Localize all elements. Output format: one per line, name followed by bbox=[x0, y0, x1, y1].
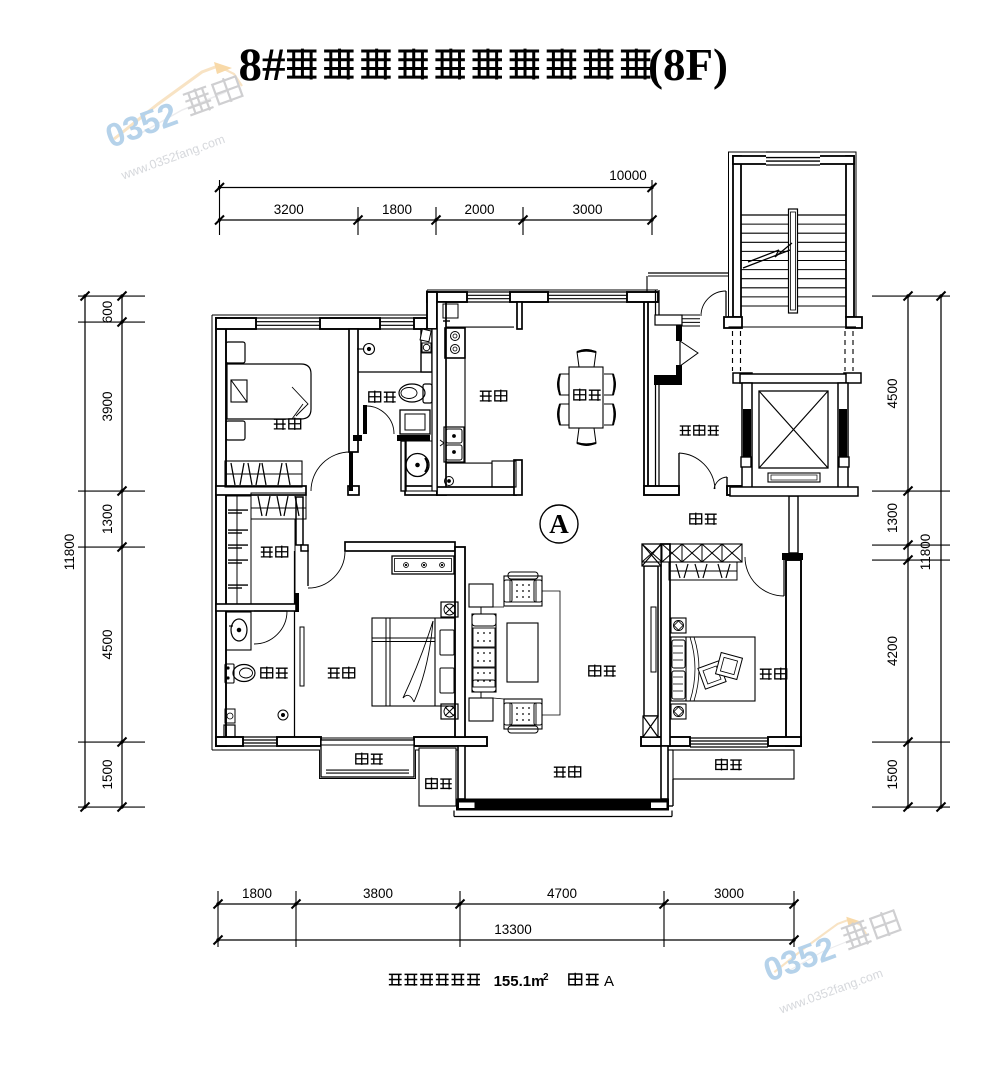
svg-text:3000: 3000 bbox=[572, 202, 602, 217]
svg-text:A: A bbox=[549, 509, 569, 539]
svg-text:3000: 3000 bbox=[714, 886, 744, 901]
svg-text:1800: 1800 bbox=[242, 886, 272, 901]
svg-text:11800: 11800 bbox=[62, 534, 77, 571]
svg-text:1800: 1800 bbox=[382, 202, 412, 217]
svg-text:2000: 2000 bbox=[464, 202, 494, 217]
svg-text:3800: 3800 bbox=[363, 886, 393, 901]
svg-text:155.1m: 155.1m bbox=[494, 973, 545, 990]
svg-text:1300: 1300 bbox=[100, 504, 115, 534]
svg-text:4700: 4700 bbox=[547, 886, 577, 901]
svg-text:8#: 8# bbox=[239, 39, 286, 91]
svg-text:1500: 1500 bbox=[100, 759, 115, 789]
svg-text:A: A bbox=[604, 973, 614, 990]
svg-text:1300: 1300 bbox=[885, 503, 900, 533]
svg-text:4500: 4500 bbox=[885, 378, 900, 408]
svg-text:3900: 3900 bbox=[100, 391, 115, 421]
svg-text:2: 2 bbox=[543, 972, 549, 983]
svg-text:4500: 4500 bbox=[100, 629, 115, 659]
svg-text:1500: 1500 bbox=[885, 759, 900, 789]
svg-text:600: 600 bbox=[100, 301, 115, 324]
svg-text:(8F): (8F) bbox=[648, 40, 728, 90]
svg-text:10000: 10000 bbox=[609, 168, 647, 183]
svg-text:4200: 4200 bbox=[885, 636, 900, 666]
svg-text:11800: 11800 bbox=[918, 534, 933, 571]
svg-text:3200: 3200 bbox=[274, 202, 304, 217]
svg-text:13300: 13300 bbox=[494, 922, 532, 937]
